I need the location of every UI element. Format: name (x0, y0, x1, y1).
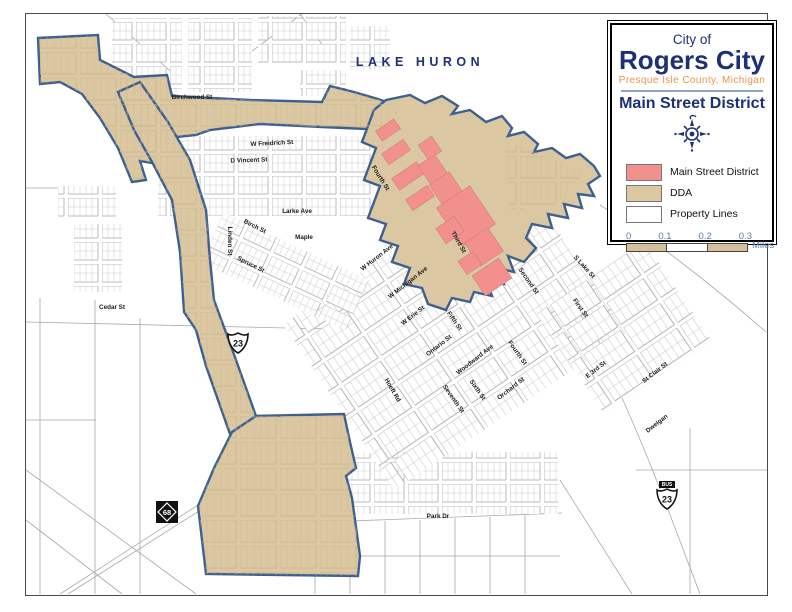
us-23-business-number: 23 (662, 495, 672, 505)
compass-rose-icon (669, 113, 715, 155)
county-subtitle: Presque Isle County, Michigan (612, 75, 772, 86)
legend-label: Main Street District (670, 166, 759, 178)
street-label: D Vincent St (230, 156, 268, 164)
panel-divider (621, 90, 763, 92)
legend-label: DDA (670, 187, 692, 199)
property-lines-swatch (626, 206, 662, 223)
scale-tick: 0.2 (699, 231, 712, 242)
street-label: Maple (295, 234, 313, 241)
scale-tick: 0.1 (658, 231, 671, 242)
title-legend-panel: City of Rogers City Presque Isle County,… (607, 20, 777, 245)
m-68-shield: 68 (156, 501, 178, 523)
scale-unit-label: Miles (752, 240, 774, 251)
lake-huron-label: LAKE HURON (356, 55, 484, 69)
street-label: Cedar St (99, 304, 126, 311)
legend-item-main-street-district: Main Street District (626, 164, 772, 181)
us-23-shield-number: 23 (233, 339, 243, 349)
scale-ticks: 0 0.1 0.2 0.3 (626, 231, 752, 242)
dda-swatch (626, 185, 662, 202)
scale-bar-segments (626, 243, 748, 252)
scale-tick: 0 (626, 231, 631, 242)
legend-item-property-lines: Property Lines (626, 206, 772, 223)
street-label: Linden St (226, 227, 233, 257)
legend-item-dda: DDA (626, 185, 772, 202)
scale-segment (666, 244, 707, 251)
page-title: Rogers City (612, 47, 772, 74)
us-23-business-banner: BUS (662, 482, 673, 488)
street-label: Birchwood St (172, 94, 213, 101)
m-68-shield-number: 68 (163, 508, 171, 517)
scale-tick: 0.3 (739, 231, 752, 242)
legend: Main Street District DDA Property Lines (626, 164, 772, 223)
main-street-district-swatch (626, 164, 662, 181)
map-page: 23 BUS 23 68 LAKE HURON Birchwood St W F… (0, 0, 792, 612)
scale-segment (708, 244, 747, 251)
district-title: Main Street District (612, 95, 772, 113)
scale-bar: 0 0.1 0.2 0.3 Miles (626, 231, 760, 252)
street-label: Park Dr (427, 513, 450, 520)
title-legend-panel-inner: City of Rogers City Presque Isle County,… (610, 23, 774, 242)
legend-label: Property Lines (670, 208, 738, 220)
scale-segment (627, 244, 666, 251)
street-label: Larke Ave (282, 208, 312, 215)
